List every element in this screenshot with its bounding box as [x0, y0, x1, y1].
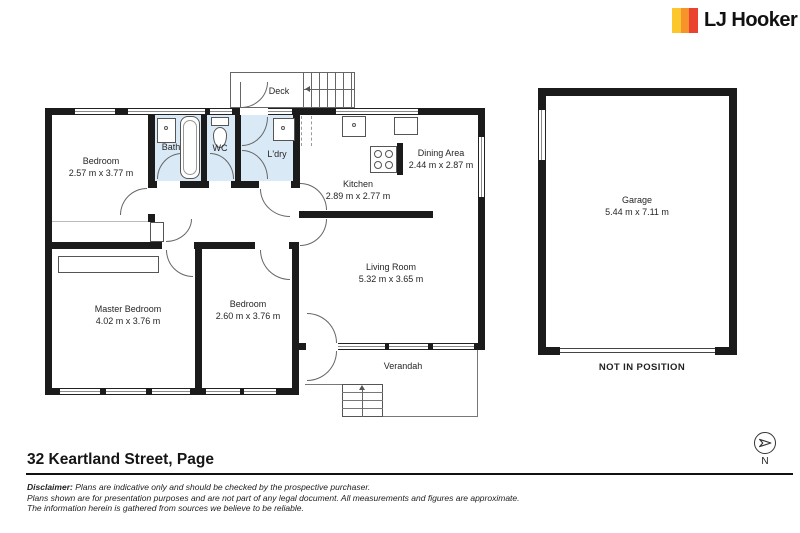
room-label-verandah: Verandah	[384, 360, 423, 372]
master-wardrobe	[58, 256, 159, 273]
trough-tap	[281, 126, 285, 130]
door-arc-kitchen	[300, 183, 327, 210]
room-label-bath: Bath	[162, 141, 181, 153]
wall-segment	[292, 249, 299, 395]
room-label-bedroom2: Bedroom 2.60 m x 3.76 m	[216, 298, 281, 322]
garage-wall	[538, 88, 737, 96]
logo-stripe-orange	[681, 8, 690, 33]
stove-burner	[374, 150, 382, 158]
room-label-garage: Garage 5.44 m x 7.11 m	[605, 194, 669, 218]
window	[60, 388, 100, 395]
ljhooker-logo: LJ Hooker	[672, 8, 797, 33]
window	[389, 343, 428, 350]
room-label-laundry: L'dry	[267, 148, 286, 160]
door-arc-laundry-hall	[260, 189, 290, 217]
room-label-master: Master Bedroom 4.02 m x 3.76 m	[95, 303, 162, 327]
window	[244, 388, 276, 395]
stove-burner	[385, 150, 393, 158]
wall-segment	[201, 108, 207, 181]
stove	[370, 146, 397, 173]
deck-door-opening	[240, 108, 268, 115]
disclaimer-text: Disclaimer: Plans are indicative only an…	[27, 482, 520, 514]
bedroom1-detail-line	[52, 221, 148, 222]
kitchen-counter	[394, 117, 418, 135]
stove-burner	[374, 161, 382, 169]
disclaimer-line-3: The information herein is gathered from …	[27, 503, 520, 514]
hall-linen-cupboard	[150, 222, 164, 242]
window	[478, 137, 485, 197]
room-label-bedroom1: Bedroom 2.57 m x 3.77 m	[69, 155, 134, 179]
room-label-deck: Deck	[269, 85, 290, 97]
garage-wall	[729, 88, 737, 355]
door-arc-verandah-inner	[307, 313, 337, 343]
wall-segment	[289, 242, 299, 249]
room-label-kitchen: Kitchen 2.89 m x 2.77 m	[326, 178, 391, 202]
stairs-direction-arrow	[305, 86, 310, 92]
deck-stairs	[303, 73, 355, 107]
wall-segment	[195, 249, 202, 388]
ljhooker-logo-icon	[672, 8, 698, 33]
logo-text: LJ Hooker	[704, 8, 797, 33]
garage-wall	[538, 347, 560, 355]
north-label: N	[761, 456, 768, 467]
window	[106, 388, 146, 395]
logo-stripe-yellow	[672, 8, 681, 33]
wall-segment	[45, 242, 162, 249]
door-arc-bedroom2	[260, 250, 290, 280]
door-arc-living	[300, 219, 327, 246]
property-address: 32 Keartland Street, Page	[27, 451, 214, 469]
sink-tap	[352, 123, 356, 127]
bathtub-inner	[183, 120, 197, 175]
footer-divider	[26, 473, 793, 475]
disclaimer-label: Disclaimer:	[27, 482, 73, 492]
wall-segment	[194, 242, 255, 249]
window	[206, 388, 240, 395]
room-label-dining: Dining Area 2.44 m x 2.87 m	[409, 147, 474, 171]
basin-tap	[164, 126, 168, 130]
wall-segment	[148, 214, 155, 222]
room-label-living: Living Room 5.32 m x 3.65 m	[359, 261, 424, 285]
wall-segment	[291, 181, 300, 188]
wall-segment	[45, 108, 52, 395]
verandah-edge-right	[477, 350, 478, 417]
steps-up-arrow	[359, 385, 365, 390]
wall-segment	[231, 181, 259, 188]
wall-segment	[397, 143, 403, 175]
window	[338, 343, 385, 350]
wall-segment	[180, 181, 209, 188]
garage-position-note: NOT IN POSITION	[599, 362, 685, 373]
garage-door-line	[560, 352, 715, 353]
bath-basin	[157, 118, 176, 143]
window	[75, 108, 115, 115]
door-arc-master	[166, 250, 193, 277]
garage-window	[538, 110, 546, 160]
toilet-cistern	[211, 117, 229, 126]
window	[336, 108, 418, 115]
disclaimer-line-1: Plans are indicative only and should be …	[75, 482, 370, 492]
garage-door-line	[560, 348, 715, 349]
window	[128, 108, 205, 115]
wall-segment	[299, 211, 433, 218]
north-arrow-icon	[754, 432, 776, 454]
window	[268, 108, 292, 115]
wall-segment	[148, 108, 155, 186]
window	[152, 388, 190, 395]
stair-overhead-dashed	[301, 116, 312, 146]
door-arc-verandah-outer	[307, 351, 337, 381]
logo-stripe-red	[689, 8, 698, 33]
door-arc-bedroom1	[120, 188, 147, 215]
floorplan-page: LJ Hooker	[0, 0, 800, 533]
disclaimer-line-2: Plans shown are for presentation purpose…	[27, 493, 520, 504]
window	[210, 108, 232, 115]
door-arc-hall-cupboard	[166, 219, 192, 242]
verandah-door-opening	[306, 343, 338, 350]
room-label-wc: WC	[213, 142, 228, 154]
garage-wall	[715, 347, 737, 355]
stove-burner	[385, 161, 393, 169]
wall-segment	[235, 108, 241, 181]
deck-stairs-midline	[303, 89, 355, 90]
verandah-edge-left	[305, 384, 342, 385]
wall-segment	[148, 181, 157, 188]
window	[433, 343, 474, 350]
steps-centerline	[362, 389, 363, 417]
north-arrow-glyph	[756, 434, 774, 452]
